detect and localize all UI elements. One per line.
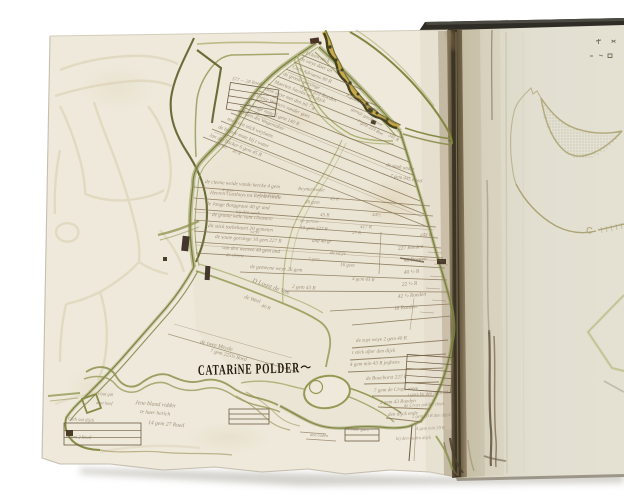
svg-text:44½: 44½ <box>372 213 381 218</box>
svg-text:4 gem: 4 gem <box>222 188 234 194</box>
svg-text:4 gem min 20 R: 4 gem min 20 R <box>416 425 445 431</box>
svg-text:de gansse: de gansse <box>300 219 320 225</box>
svg-text:417 R: 417 R <box>360 225 372 230</box>
svg-text:26 gem: 26 gem <box>305 200 320 206</box>
svg-text:t out gat: t out gat <box>98 391 114 397</box>
svg-text:aent hoof: aent hoof <box>96 400 113 406</box>
svg-text:22 ½ R: 22 ½ R <box>402 280 419 288</box>
svg-text:7 gem: 7 gem <box>308 257 320 263</box>
svg-text:243 R: 243 R <box>420 233 432 238</box>
svg-text:16 gem: 16 gem <box>340 263 355 269</box>
svg-text:weye: weye <box>250 230 261 236</box>
svg-text:de weye: de weye <box>330 251 347 257</box>
svg-text:40 ½ R: 40 ½ R <box>404 268 421 276</box>
svg-text:45 R: 45 R <box>330 197 339 202</box>
svg-text:45 R: 45 R <box>320 213 330 218</box>
svg-text:6 gem 2 Roed: 6 gem 2 Roed <box>66 434 92 440</box>
svg-text:27 R: 27 R <box>352 231 361 236</box>
svg-text:and 40 gr: and 40 gr <box>312 239 332 245</box>
svg-text:CATARiNE POLDER: CATARiNE POLDER <box>198 360 300 379</box>
